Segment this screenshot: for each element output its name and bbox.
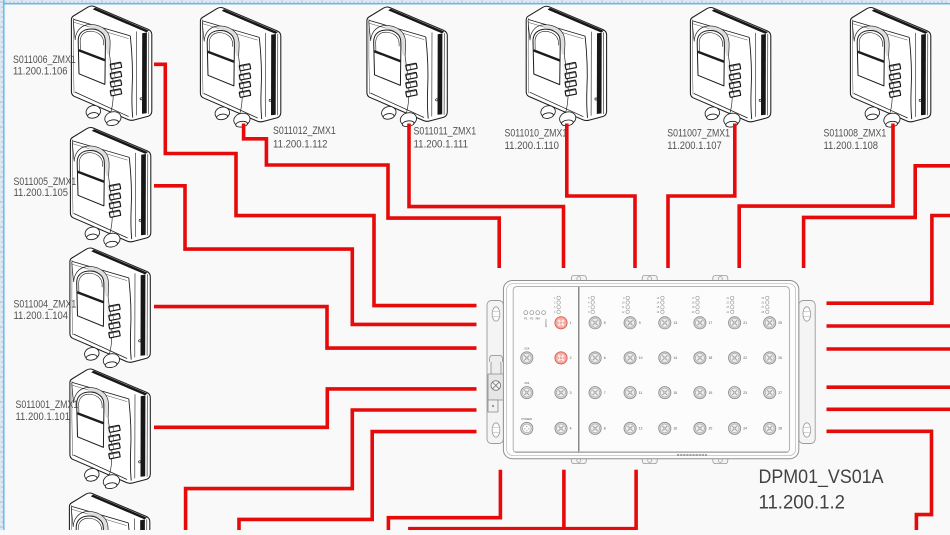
svg-text:16: 16 [673,427,677,431]
svg-text:17: 17 [709,321,713,325]
svg-text:9: 9 [639,321,641,325]
svg-text:5: 5 [604,321,606,325]
svg-text:11.200.1.101: 11.200.1.101 [16,411,71,423]
svg-text:1: 1 [570,321,572,325]
svg-text:11.200.1.108: 11.200.1.108 [824,140,879,152]
svg-text:24: 24 [743,427,747,431]
svg-text:S011011_ZMX1: S011011_ZMX1 [414,126,477,138]
svg-text:11.200.1.104: 11.200.1.104 [14,310,69,322]
svg-text:S011006_ZMX1: S011006_ZMX1 [13,54,76,66]
svg-text:27: 27 [778,391,782,395]
svg-text:10: 10 [639,356,643,360]
svg-text:19: 19 [709,391,713,395]
svg-text:S011008_ZMX1: S011008_ZMX1 [824,127,887,139]
svg-text:S011004_ZMX1: S011004_ZMX1 [14,298,77,310]
svg-text:P2: P2 [530,316,534,320]
svg-text:DPM01_VS01A: DPM01_VS01A [759,467,884,488]
svg-text:11: 11 [639,391,643,395]
svg-text:X24: X24 [524,347,529,351]
svg-text:X04: X04 [524,381,529,385]
svg-text:7: 7 [604,391,606,395]
svg-text:18: 18 [709,356,713,360]
svg-text:11.200.1.2: 11.200.1.2 [759,493,846,514]
svg-text:11.200.1.107: 11.200.1.107 [667,140,722,152]
svg-text:12: 12 [639,427,643,431]
svg-text:FAULT: FAULT [544,320,548,329]
svg-text:25: 25 [778,321,782,325]
svg-text:20: 20 [709,427,713,431]
svg-text:14: 14 [673,356,677,360]
svg-text:3: 3 [570,391,572,395]
svg-text:26: 26 [778,356,782,360]
svg-text:23: 23 [743,391,747,395]
svg-text:11.200.1.105: 11.200.1.105 [14,187,69,199]
svg-text:S011007_ZMX1: S011007_ZMX1 [667,127,730,139]
svg-text:11.200.1.112: 11.200.1.112 [273,138,328,150]
svg-text:11.200.1.111: 11.200.1.111 [414,139,469,151]
svg-text:POWER: POWER [522,417,533,421]
svg-text:28: 28 [778,427,782,431]
svg-text:S011012_ZMX1: S011012_ZMX1 [273,125,336,137]
svg-text:15: 15 [673,391,677,395]
svg-text:6: 6 [604,356,606,360]
svg-text:2: 2 [570,356,572,360]
svg-text:21: 21 [743,321,747,325]
svg-text:S011010_ZMX1: S011010_ZMX1 [505,127,568,139]
svg-text:4: 4 [570,427,572,431]
svg-text:11.200.1.106: 11.200.1.106 [13,66,68,78]
svg-text:11.200.1.110: 11.200.1.110 [505,140,560,152]
svg-text:S011001_ZMX1: S011001_ZMX1 [16,399,79,411]
svg-text:13: 13 [673,321,677,325]
svg-text:8: 8 [604,427,606,431]
svg-text:P1: P1 [524,316,528,320]
svg-text:22: 22 [743,356,747,360]
